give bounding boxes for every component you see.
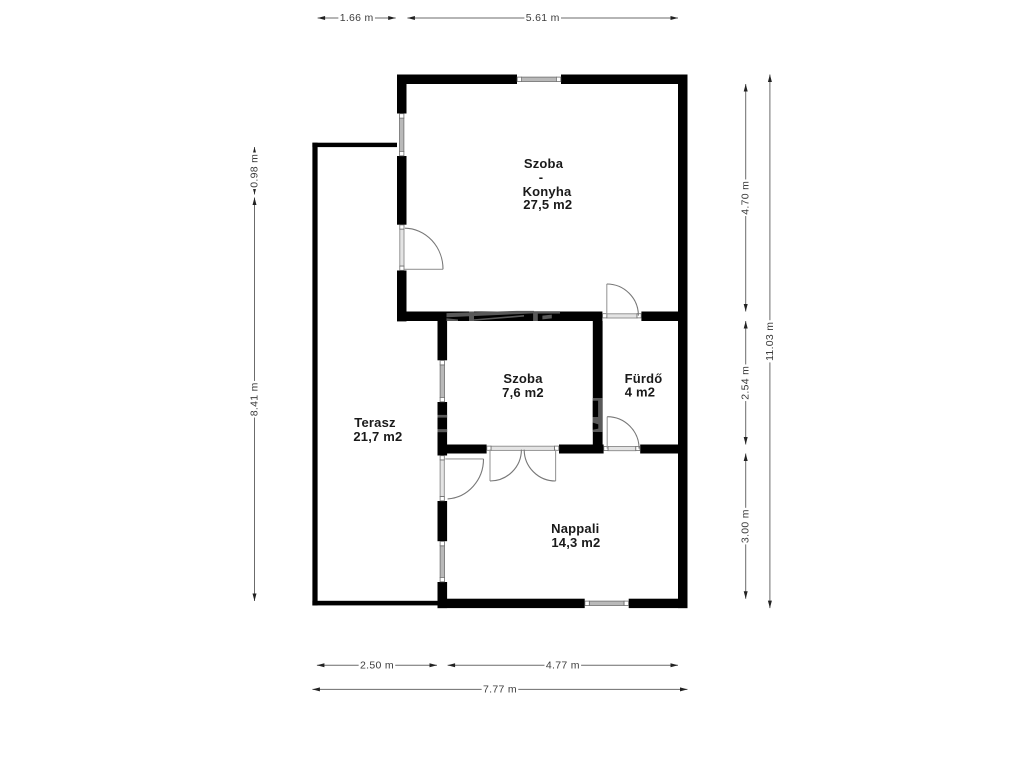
- svg-text:11.03 m: 11.03 m: [764, 322, 776, 361]
- svg-text:8.41 m: 8.41 m: [249, 382, 261, 416]
- svg-text:21,7 m2: 21,7 m2: [353, 429, 402, 444]
- svg-text:Nappali: Nappali: [551, 521, 599, 536]
- svg-text:1.66 m: 1.66 m: [340, 12, 374, 24]
- svg-text:4 m2: 4 m2: [625, 385, 655, 400]
- svg-text:5.61 m: 5.61 m: [526, 12, 560, 24]
- svg-text:4.70 m: 4.70 m: [740, 181, 752, 215]
- svg-text:4.77 m: 4.77 m: [546, 659, 580, 671]
- svg-text:3.00 m: 3.00 m: [740, 509, 752, 543]
- svg-text:Szoba: Szoba: [524, 156, 564, 171]
- svg-text:7.77 m: 7.77 m: [483, 683, 517, 695]
- svg-text:Terasz: Terasz: [354, 415, 396, 430]
- svg-text:2.54 m: 2.54 m: [740, 366, 752, 400]
- svg-text:27,5 m2: 27,5 m2: [523, 197, 572, 212]
- svg-text:2.50 m: 2.50 m: [360, 659, 394, 671]
- svg-text:-: -: [539, 170, 544, 185]
- svg-text:14,3 m2: 14,3 m2: [551, 535, 600, 550]
- svg-text:Szoba: Szoba: [503, 371, 543, 386]
- svg-text:7,6 m2: 7,6 m2: [502, 385, 544, 400]
- svg-text:0.98 m: 0.98 m: [249, 154, 261, 188]
